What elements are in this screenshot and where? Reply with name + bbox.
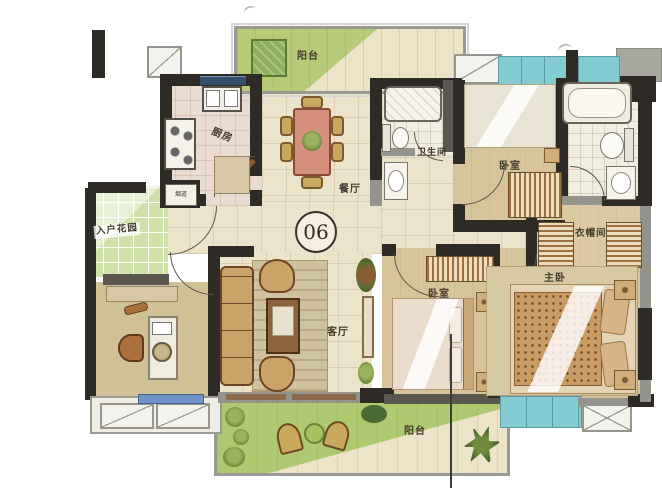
dining-chair [331, 142, 344, 162]
kitchen-sink-bowl [224, 90, 238, 107]
wall-bedroom-mid-bottom [384, 394, 500, 404]
flue-label: 烟道 [175, 192, 187, 198]
shrub [225, 407, 245, 427]
nightstand [544, 148, 560, 163]
shrub [233, 429, 249, 445]
shower-tub [384, 86, 442, 122]
toilet [382, 124, 391, 152]
study-chair [118, 334, 144, 362]
wardrobe [606, 222, 642, 268]
wall-right-d [640, 380, 651, 402]
toilet-bowl [600, 132, 624, 159]
sliding-door-track [226, 394, 286, 400]
wall-garden-bottom [103, 274, 169, 285]
sofa [220, 266, 254, 386]
sliding-door-track [292, 394, 356, 400]
bathroom-label: 卫生间 [417, 148, 447, 158]
shrub [223, 447, 245, 467]
nightstand [614, 370, 636, 390]
unit-number: 06 [303, 220, 328, 244]
armchair [259, 259, 295, 293]
plant-dark [361, 405, 387, 423]
wardrobe [538, 222, 574, 268]
unit-number-badge: 06 [295, 211, 337, 253]
cloakroom-label: 衣帽间 [575, 229, 607, 240]
wall [92, 30, 105, 78]
living-label: 客厅 [327, 327, 349, 339]
wall-left-b [85, 286, 96, 400]
pencil-mark [243, 4, 258, 18]
bed [392, 298, 474, 390]
sink-basin [611, 172, 631, 194]
ac-platform [156, 403, 210, 429]
wall-bath-left-stub [370, 180, 382, 206]
tv-cabinet [362, 296, 374, 358]
wall-bath-left [370, 80, 382, 180]
armchair [259, 356, 295, 392]
wall-right-c [637, 308, 652, 380]
study-monitor [152, 322, 172, 335]
dining-chair [301, 176, 323, 189]
balcony-top-label: 阳台 [297, 51, 319, 63]
bed [464, 84, 556, 148]
toilet-bowl [392, 127, 409, 149]
wall-bedroom-mid-top-e [436, 244, 500, 256]
dining-label: 餐厅 [339, 184, 361, 196]
kitchen-window [200, 76, 246, 85]
bed-drape [465, 85, 555, 147]
vanity-basin [388, 170, 404, 192]
dining-chair [331, 116, 344, 136]
bedroom-top-label: 卧室 [499, 161, 521, 173]
kitchen-sink-bowl [206, 90, 220, 107]
study-globe [152, 342, 172, 362]
patio-table [304, 423, 325, 444]
dining-chair [280, 116, 293, 136]
bathtub-inner [568, 88, 626, 118]
toilet-tank [624, 128, 634, 162]
ac-platform [582, 404, 632, 432]
study-cabinet [106, 286, 178, 302]
nightstand [614, 280, 636, 300]
master-bay-window [500, 396, 582, 428]
wall-living-top-stub [208, 246, 254, 257]
wall-left-a [85, 188, 96, 290]
balcony-bottom [214, 402, 510, 476]
bedroom-mid-label: 卧室 [428, 289, 450, 301]
coffee-table-top [272, 306, 294, 336]
bed-headboard [463, 299, 473, 389]
plant [358, 362, 374, 384]
ac-platform [100, 403, 154, 429]
plant [356, 258, 376, 292]
study-window-sill [138, 394, 204, 404]
dining-centerpiece [302, 131, 322, 151]
wardrobe [508, 172, 562, 218]
leader-line [450, 334, 452, 488]
kitchen-counter [214, 156, 250, 194]
balcony-bottom-label: 阳台 [404, 426, 426, 438]
flue-box-inner: 烟道 [165, 184, 197, 206]
kitchen-stove [164, 118, 196, 170]
master-bedroom-label: 主卧 [544, 273, 566, 285]
wardrobe [426, 256, 494, 282]
planter-box [251, 39, 287, 77]
dining-chair [280, 142, 293, 162]
wall-garden-top [88, 182, 146, 193]
floor-plan: 阳台 阳台 烟道 [0, 0, 662, 500]
